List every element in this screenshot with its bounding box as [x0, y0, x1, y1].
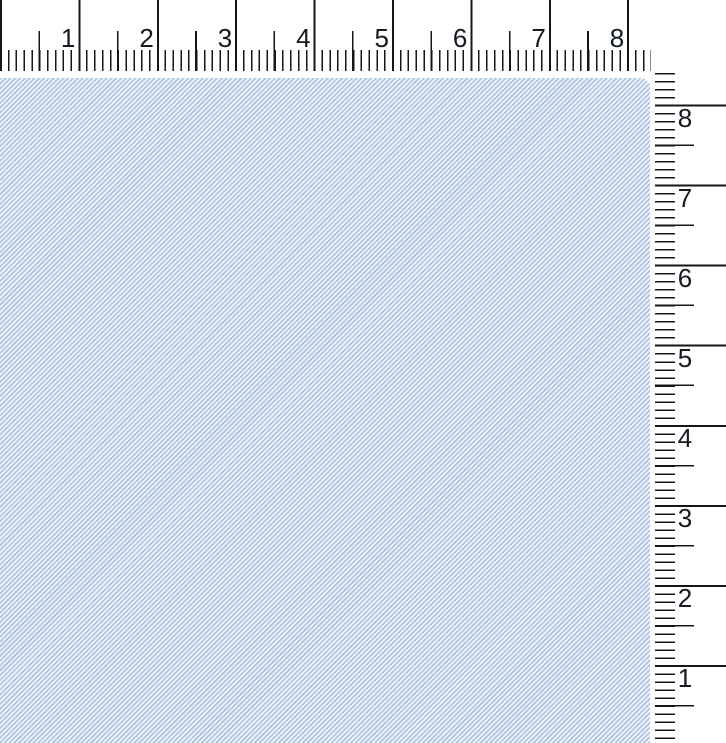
v-ruler-number-5: 5 [674, 345, 696, 371]
v-ruler-number-2: 2 [674, 585, 696, 611]
fabric-measurement-view: 1 2 3 4 5 6 7 8 8 7 6 5 4 3 2 1 [0, 0, 726, 743]
v-ruler-number-6: 6 [674, 265, 696, 291]
v-ruler-number-3: 3 [674, 505, 696, 531]
fabric-swatch [0, 78, 650, 743]
h-ruler-number-7: 7 [524, 25, 546, 51]
h-ruler-number-5: 5 [367, 25, 389, 51]
vertical-ruler: 8 7 6 5 4 3 2 1 [655, 73, 726, 743]
h-ruler-number-4: 4 [289, 25, 311, 51]
h-ruler-number-8: 8 [602, 25, 624, 51]
h-ruler-number-6: 6 [445, 25, 467, 51]
h-ruler-number-3: 3 [210, 25, 232, 51]
v-ruler-number-1: 1 [674, 665, 696, 691]
horizontal-ruler: 1 2 3 4 5 6 7 8 [0, 0, 651, 71]
v-ruler-number-7: 7 [674, 185, 696, 211]
h-ruler-number-2: 2 [132, 25, 154, 51]
h-ruler-number-1: 1 [53, 25, 75, 51]
v-ruler-number-8: 8 [674, 105, 696, 131]
v-ruler-number-4: 4 [674, 425, 696, 451]
